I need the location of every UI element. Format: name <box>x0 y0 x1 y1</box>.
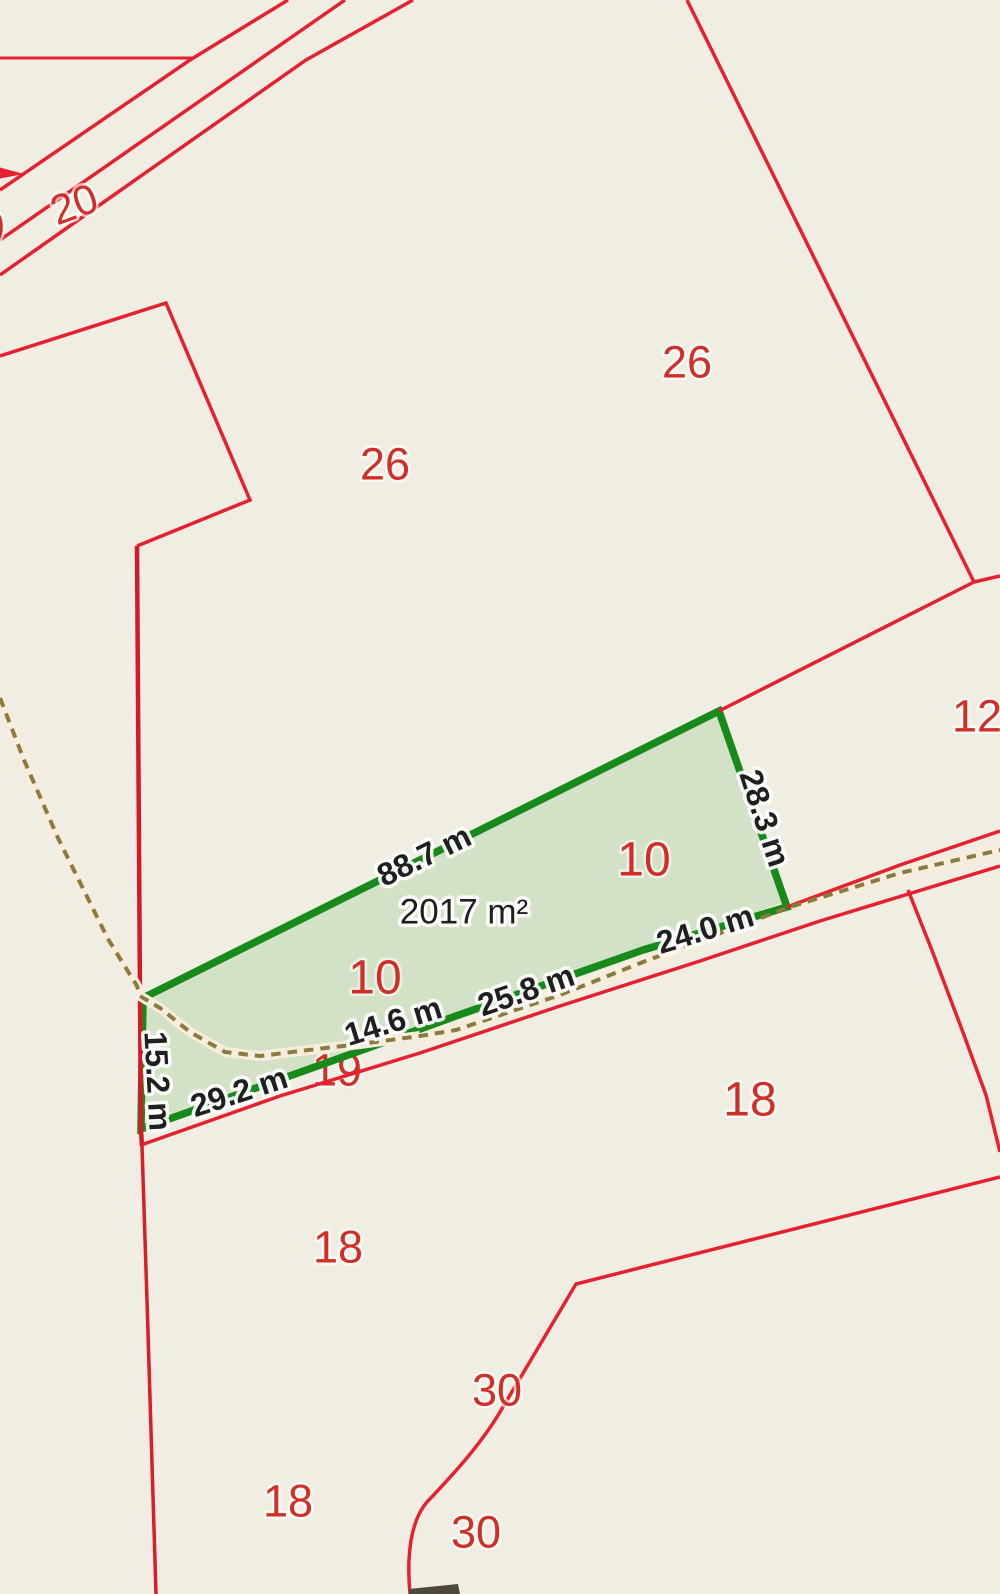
svg-text:26: 26 <box>662 337 712 388</box>
svg-text:0: 0 <box>0 202 5 253</box>
svg-text:10: 10 <box>348 952 401 1005</box>
svg-text:12: 12 <box>952 691 1000 742</box>
svg-text:30: 30 <box>451 1507 501 1558</box>
svg-text:18: 18 <box>723 1074 776 1127</box>
svg-text:18: 18 <box>313 1222 363 1273</box>
svg-text:26: 26 <box>360 439 410 490</box>
svg-text:2017 m²: 2017 m² <box>400 893 528 932</box>
svg-text:30: 30 <box>472 1365 522 1416</box>
svg-text:10: 10 <box>617 834 670 887</box>
svg-text:15.2 m: 15.2 m <box>137 1030 178 1131</box>
svg-text:18: 18 <box>263 1476 313 1527</box>
